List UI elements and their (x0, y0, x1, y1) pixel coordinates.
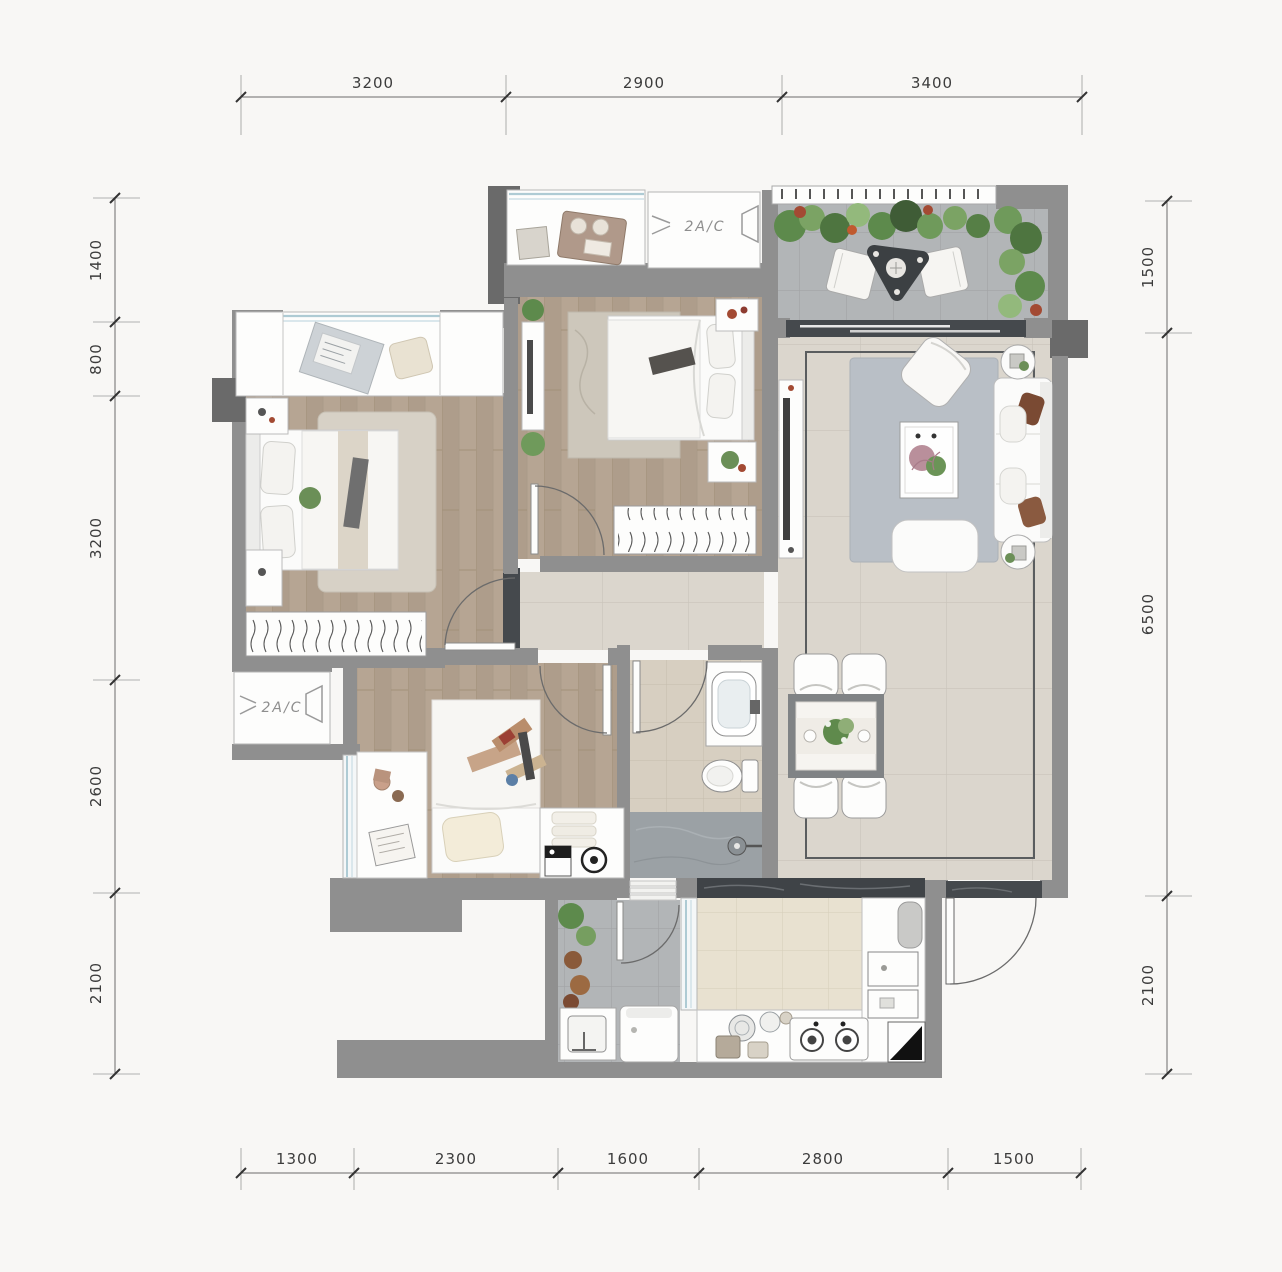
balcony-sliding-door (786, 320, 1026, 337)
dining-chair (794, 654, 838, 698)
plant (521, 432, 545, 456)
wall (925, 880, 948, 898)
door-leaf (946, 898, 954, 984)
wall (608, 648, 630, 665)
nightstand (716, 299, 758, 331)
place-setting (858, 730, 870, 742)
wardrobe-hangers (250, 614, 422, 654)
wall (708, 645, 762, 660)
pillow (706, 373, 736, 419)
coffee-table (900, 422, 958, 498)
bedroom2-bay-window (507, 190, 645, 265)
railing-bar (772, 186, 996, 204)
utility-glazed-partition (681, 898, 697, 1010)
wall (232, 656, 332, 672)
sliding-door-leaf (850, 330, 1000, 333)
dining-chair (794, 774, 838, 818)
wall (232, 744, 360, 760)
nightstand (246, 550, 282, 606)
floor-plan-page: 2A/C 2A/C (0, 0, 1282, 1272)
door-leaf (531, 484, 538, 554)
nightstand-deco (738, 464, 746, 472)
dimension-bottom: 1300 2300 1600 2800 1500 (236, 1148, 1086, 1190)
wall (1052, 356, 1068, 898)
dim-label-left-2: 800 (87, 343, 105, 375)
dim-label-right-3: 2100 (1139, 964, 1157, 1006)
bed-headboard (246, 430, 260, 570)
tv-console (779, 380, 803, 558)
tv-screen (783, 398, 790, 540)
nightstand-flower (727, 309, 737, 319)
wall (925, 898, 942, 1078)
place-setting (804, 730, 816, 742)
wall (1040, 880, 1068, 898)
wall (355, 878, 617, 900)
ac-platform-label: 2A/C (685, 219, 726, 235)
wardrobe (614, 506, 756, 554)
centerpiece-flower (825, 721, 831, 727)
nightstand-flower (741, 307, 748, 314)
round-appliance-center (590, 856, 598, 864)
shower-head-center (734, 843, 740, 849)
centerpiece-flower (841, 737, 847, 743)
tv-screen (527, 340, 533, 414)
dim-label-bottom-5: 1500 (993, 1150, 1035, 1168)
wardrobe-hangers (618, 508, 752, 552)
door-leaf (445, 643, 515, 650)
toy-deco (392, 790, 404, 802)
entry-door (946, 881, 1042, 984)
dim-label-bottom-2: 2300 (435, 1150, 477, 1168)
bay-deco-box (517, 227, 550, 260)
sliding-door-track (786, 320, 1026, 337)
console-deco (788, 547, 794, 553)
washing-machine (620, 1006, 678, 1062)
side-table (1001, 345, 1035, 379)
small-appliance-top (545, 846, 571, 858)
nightstand-deco (269, 417, 275, 423)
kettle (898, 902, 922, 948)
appliance-door (880, 998, 894, 1008)
door-swing-arc (950, 898, 1036, 984)
dimension-left: 1400 800 3200 2600 2100 (87, 193, 140, 1079)
utility-steps (630, 881, 676, 900)
small-appliance (868, 952, 918, 986)
ac-platform-label: 2A/C (262, 700, 303, 716)
ac-platform-bottom-left: 2A/C (234, 672, 330, 744)
desk-unit (540, 808, 624, 878)
towel-stack (552, 826, 596, 836)
vanity (706, 662, 762, 746)
master-bay-window (236, 312, 503, 396)
pillow (441, 811, 505, 863)
wall (504, 298, 518, 398)
dimension-right: 1500 6500 2100 (1139, 196, 1192, 1079)
wall (1024, 318, 1052, 338)
sofa-pillow (1000, 406, 1026, 442)
wall (762, 648, 778, 880)
clothes-on-bed (506, 774, 518, 786)
dim-label-top-2: 2900 (623, 74, 665, 92)
dining-area (788, 654, 886, 818)
toilet-tank (742, 760, 758, 792)
floor-plan-drawing: 2A/C 2A/C (0, 0, 1282, 1272)
bed-blanket (608, 320, 700, 438)
wall (504, 558, 518, 574)
balcony-railing (772, 186, 996, 204)
dim-label-top-3: 3400 (911, 74, 953, 92)
wall-column (1050, 320, 1088, 358)
wall (1048, 190, 1068, 322)
bedroom3-window (343, 755, 357, 878)
fridge (888, 1022, 925, 1062)
bed-headboard (742, 316, 754, 440)
wall (337, 1040, 558, 1078)
nightstand-deco (258, 568, 266, 576)
wall (545, 898, 558, 1062)
sliding-door-leaf (800, 325, 950, 328)
dim-label-left-4: 2600 (87, 765, 105, 807)
toilet-seat (707, 766, 733, 786)
bed-plant-deco (299, 487, 321, 509)
door-leaf (603, 665, 611, 735)
wall (545, 1062, 942, 1078)
gas-stove (790, 1018, 868, 1060)
wall (676, 878, 697, 898)
door-leaf (633, 661, 640, 733)
dim-label-left-3: 3200 (87, 517, 105, 559)
appliance-dot (881, 965, 887, 971)
wall (343, 663, 357, 755)
nightstand (246, 398, 288, 434)
dimension-top: 3200 2900 3400 (236, 74, 1087, 135)
dim-label-bottom-3: 1600 (607, 1150, 649, 1168)
dim-label-left-1: 1400 (87, 239, 105, 281)
nightstand-deco (258, 408, 266, 416)
dim-label-right-2: 6500 (1139, 593, 1157, 635)
hallway-floor (518, 572, 764, 650)
dim-label-left-5: 2100 (87, 962, 105, 1004)
sofa (994, 378, 1052, 542)
appliance-dot (550, 850, 555, 855)
wardrobe (246, 612, 426, 656)
plant (522, 299, 544, 321)
laundry-sink (560, 1008, 616, 1060)
dim-label-bottom-1: 1300 (276, 1150, 318, 1168)
dining-chair (842, 654, 886, 698)
ac-platform-top: 2A/C (648, 192, 760, 268)
ottoman (892, 520, 978, 572)
door-leaf (617, 902, 623, 960)
dining-table (788, 694, 884, 778)
table-centerpiece-plant (838, 718, 854, 734)
dim-label-bottom-4: 2800 (802, 1150, 844, 1168)
table-plant (926, 456, 946, 476)
wall (540, 556, 778, 572)
sofa-pillow (1000, 468, 1026, 504)
partition-frame (681, 898, 697, 1010)
side-table (1001, 535, 1035, 569)
wall (762, 190, 778, 572)
dim-label-right-1: 1500 (1139, 246, 1157, 288)
window-frame (343, 755, 357, 878)
dim-label-top-1: 3200 (352, 74, 394, 92)
bay-deco-tray (557, 211, 627, 265)
pillow (260, 441, 296, 495)
dining-chair (842, 774, 886, 818)
towel-stack (552, 812, 596, 824)
console-deco (788, 385, 794, 391)
toilet (702, 760, 758, 792)
faucet (750, 700, 760, 714)
nightstand-plant (721, 451, 739, 469)
wall (503, 393, 518, 573)
